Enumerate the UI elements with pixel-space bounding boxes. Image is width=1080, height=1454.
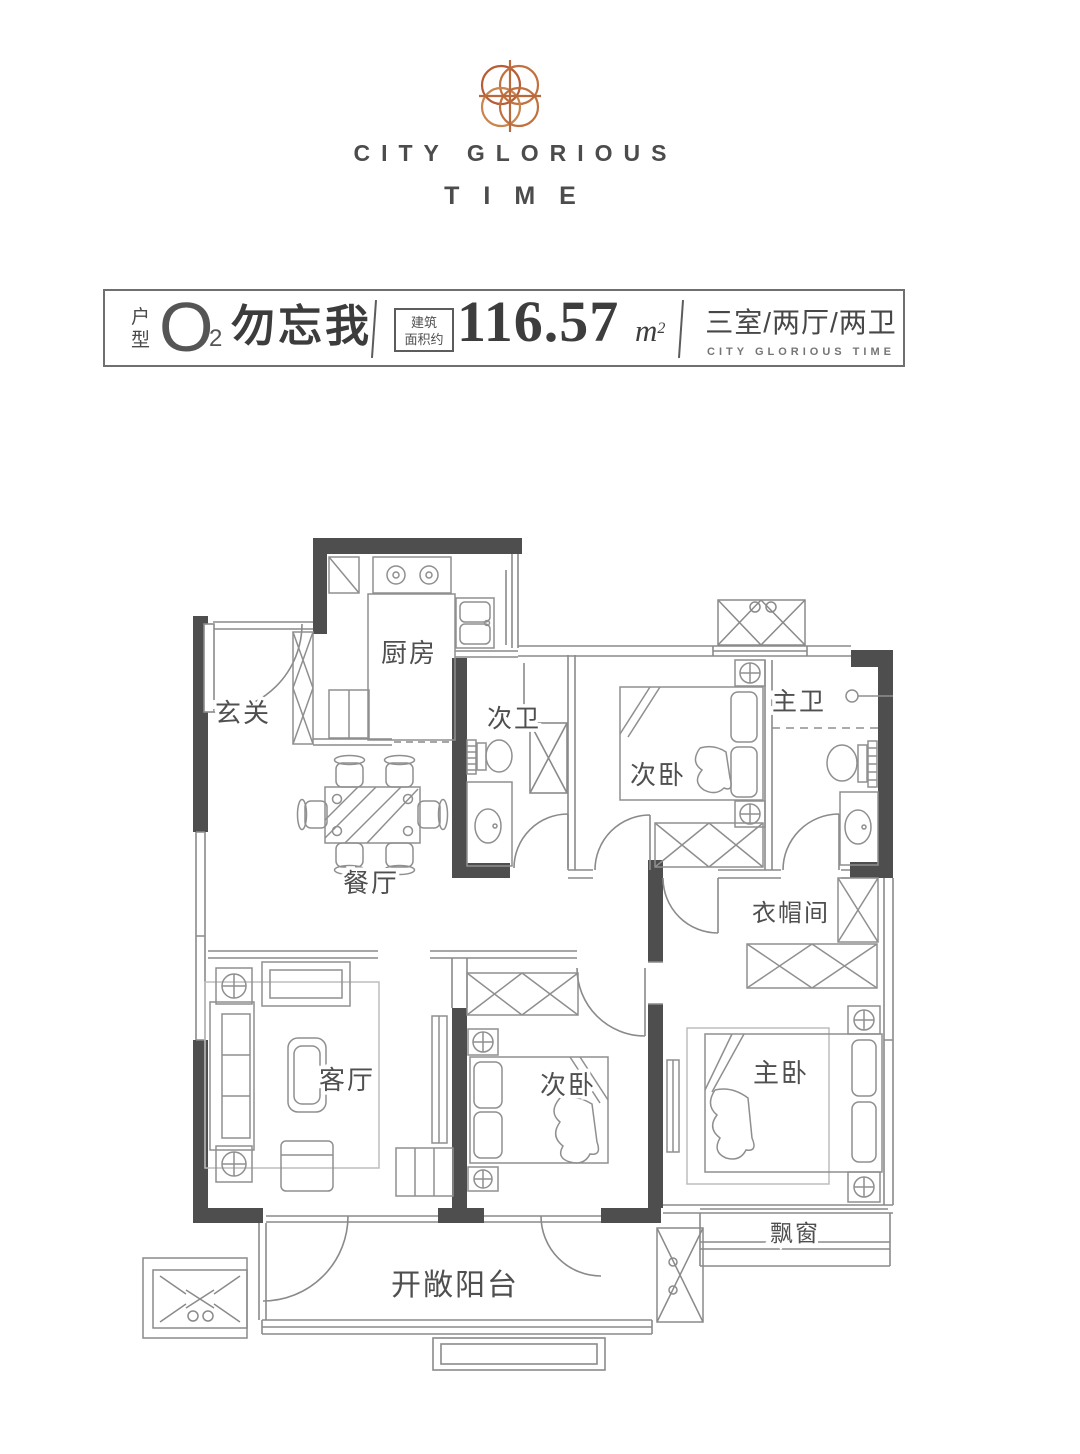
brand-name-line1: CITY GLORIOUS [0,140,1020,167]
entry-shoe-cabinet [293,632,313,744]
ac-platform-left [143,1258,247,1338]
area-note-line1: 建筑 [396,314,452,331]
ac-unit-top [718,600,805,645]
room-label-entry: 玄关 [215,698,271,728]
room-label-living: 客厅 [319,1065,375,1095]
room-label-bedroom2: 次卧 [630,760,686,790]
master-bedroom-furniture [667,1006,882,1202]
unit-code: O [159,281,213,373]
structural-walls [193,538,893,1223]
dining-table-set [298,756,448,875]
room-label-bedroom1: 次卧 [540,1070,596,1100]
cloakroom-wardrobes [747,878,878,988]
unit-type-label: 户 型 [131,306,150,352]
unit-type-label-top: 户 [131,306,150,329]
room-label-kitchen: 厨房 [381,638,437,668]
area-unit: m2 [635,313,665,349]
ac-unit-bottom [657,1228,703,1322]
area-note-line2: 面积约 [396,331,452,348]
floorplan-page: CITY GLORIOUS TIME 户 型 O 2 勿忘我 建筑 面积约 11… [0,0,1080,1454]
area-unit-m: m [635,313,657,348]
room-label-cloakroom: 衣帽间 [752,900,830,927]
unit-type-label-bottom: 型 [131,329,150,352]
room-label-bath2: 次卫 [487,705,541,733]
room-label-master-bedroom: 主卧 [753,1058,809,1088]
floorplan-drawing: 玄关 厨房 次卫 次卧 主卫 餐厅 衣帽间 客厅 次卧 主卧 飘窗 开敞阳台 [140,515,1020,1405]
room-label-bay-window: 飘窗 [770,1220,820,1246]
layout-summary-block: 三室/两厅/两卫 CITY GLORIOUS TIME [701,301,901,358]
area-value: 116.57 [457,283,619,361]
brand-name-line2: TIME [0,182,1020,211]
unit-code-subscript: 2 [209,325,222,353]
layout-summary: 三室/两厅/两卫 [701,301,901,341]
layout-summary-en: CITY GLORIOUS TIME [701,346,901,358]
room-label-dining: 餐厅 [343,868,399,898]
master-bath-fixtures [772,690,893,865]
bath2-fixtures [467,740,512,866]
unit-name: 勿忘我 [231,297,372,357]
brand-logo-icon [478,58,542,134]
unit-title-bar: 户 型 O 2 勿忘我 建筑 面积约 116.57 m2 三室/两厅/两卫 CI… [103,289,905,367]
area-unit-sup: 2 [657,320,665,337]
room-label-balcony: 开敞阳台 [391,1269,519,1302]
divider [678,300,684,358]
room-label-master-bath: 主卫 [772,688,826,716]
area-note-box: 建筑 面积约 [394,308,454,352]
